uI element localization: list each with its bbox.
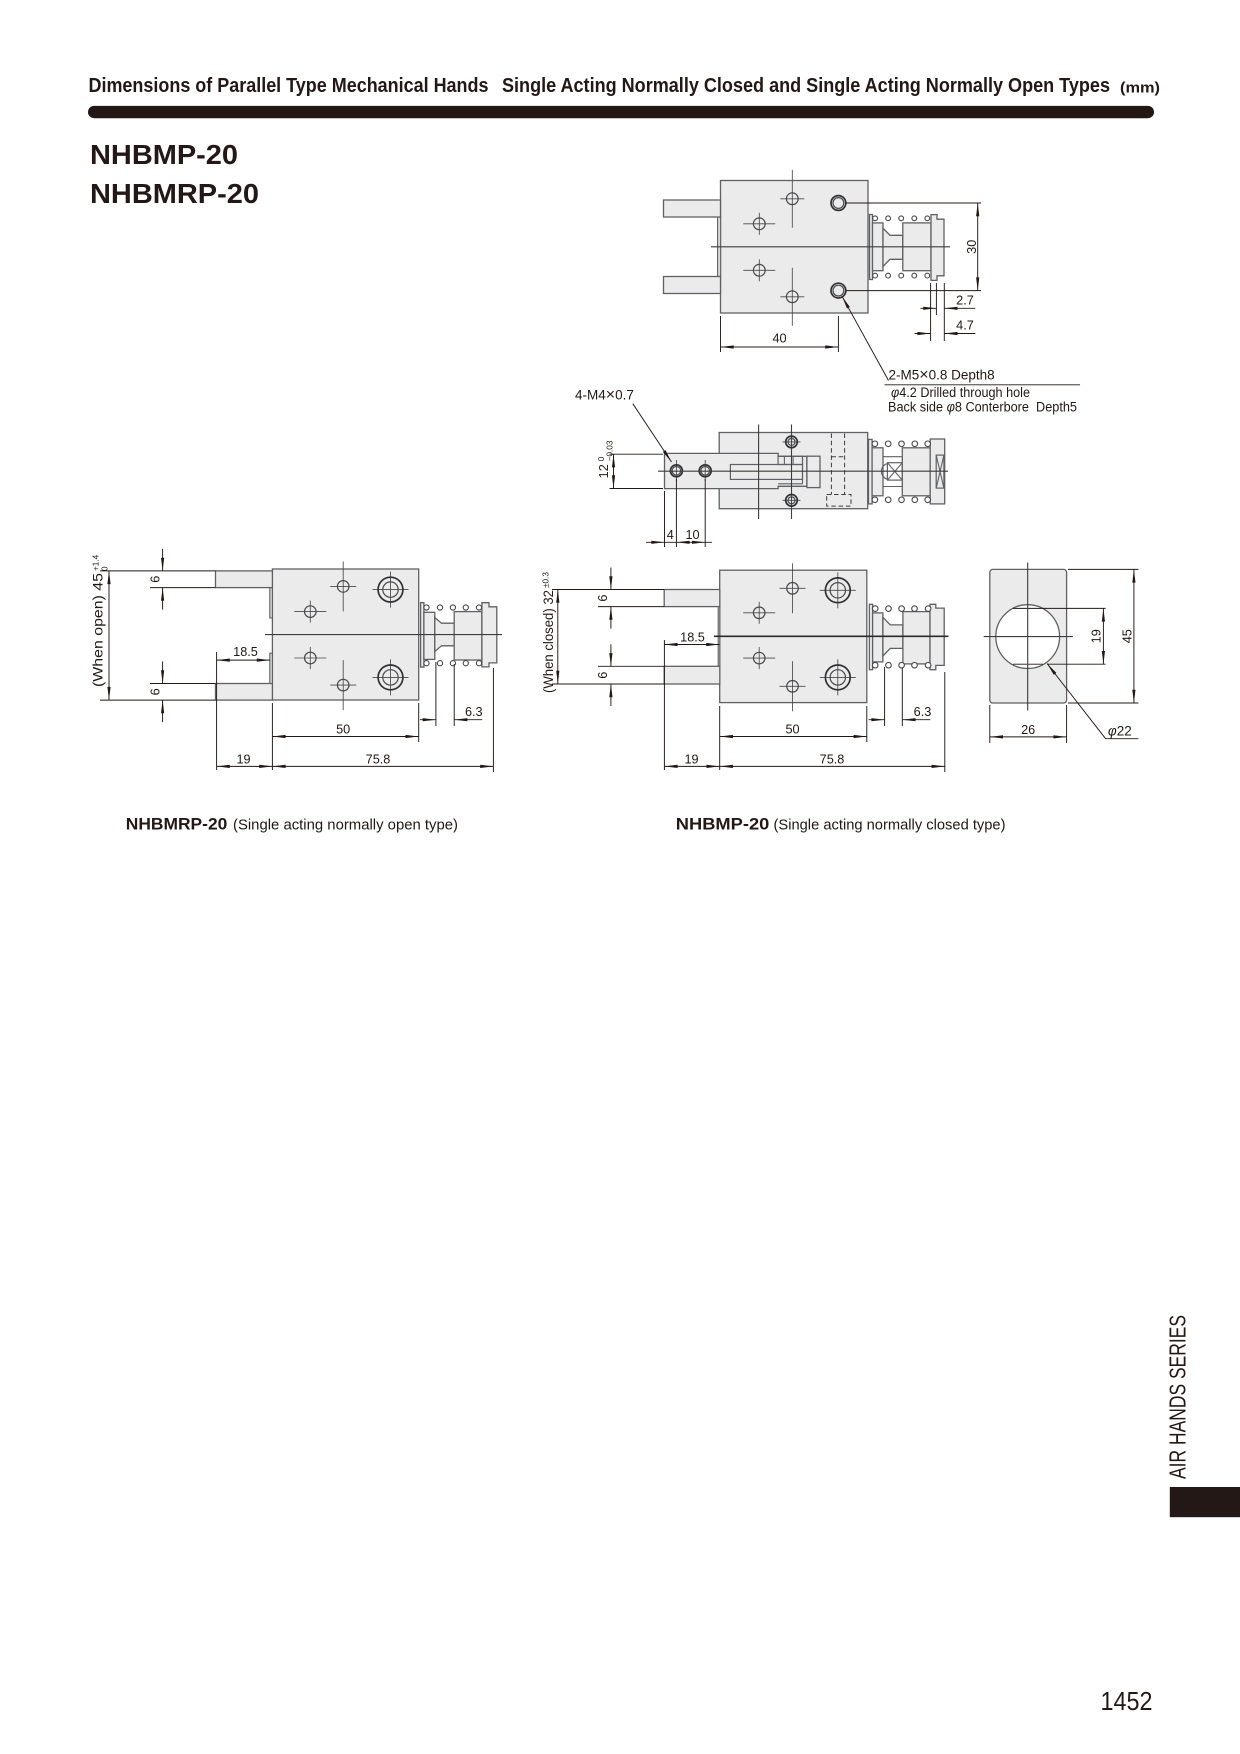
svg-text:6: 6 xyxy=(149,576,163,583)
svg-text:NHBMRP-20: NHBMRP-20 xyxy=(126,816,228,834)
svg-text:12: 12 xyxy=(597,464,611,478)
svg-text:6.3: 6.3 xyxy=(914,705,932,719)
svg-text:−0.03: −0.03 xyxy=(606,440,615,461)
svg-text:NHBMP-20: NHBMP-20 xyxy=(676,816,770,834)
svg-text:50: 50 xyxy=(785,723,799,737)
svg-text:4: 4 xyxy=(667,528,674,542)
svg-text:10: 10 xyxy=(685,528,699,542)
svg-text:26: 26 xyxy=(1021,723,1035,737)
svg-text:Single Acting Normally Closed: Single Acting Normally Closed and Single… xyxy=(502,74,1110,97)
svg-text:±0.3: ±0.3 xyxy=(542,572,551,588)
svg-text:φ4.2 Drilled through hole: φ4.2 Drilled through hole xyxy=(891,385,1030,400)
svg-text:6: 6 xyxy=(149,688,163,695)
svg-text:NHBMRP-20: NHBMRP-20 xyxy=(90,178,259,209)
svg-text:2.7: 2.7 xyxy=(956,294,974,308)
svg-text:18.5: 18.5 xyxy=(680,631,705,645)
svg-text:NHBMP-20: NHBMP-20 xyxy=(90,139,238,170)
svg-text:18.5: 18.5 xyxy=(233,645,258,659)
svg-text:(mm): (mm) xyxy=(1120,81,1160,97)
svg-text:40: 40 xyxy=(772,332,786,346)
svg-text:0: 0 xyxy=(100,566,109,571)
svg-text:Dimensions of Parallel Type Me: Dimensions of Parallel Type Mechanical H… xyxy=(89,74,489,97)
svg-text:1452: 1452 xyxy=(1101,1686,1153,1716)
svg-text:φ22: φ22 xyxy=(1108,724,1132,739)
svg-text:2-M5×0.8 Depth8: 2-M5×0.8 Depth8 xyxy=(889,366,995,383)
svg-text:4-M4×0.7: 4-M4×0.7 xyxy=(575,387,634,404)
svg-text:(When open) 45: (When open) 45 xyxy=(91,573,106,687)
svg-text:19: 19 xyxy=(1089,629,1103,643)
svg-text:75.8: 75.8 xyxy=(366,753,391,767)
svg-text:50: 50 xyxy=(336,723,350,737)
svg-text:+1.4: +1.4 xyxy=(92,554,101,571)
svg-text:AIR HANDS SERIES: AIR HANDS SERIES xyxy=(1165,1315,1191,1479)
svg-text:6: 6 xyxy=(596,672,610,679)
svg-text:6.3: 6.3 xyxy=(465,705,483,719)
svg-text:Back side φ8 Conterbore Depth: Back side φ8 Conterbore Depth5 xyxy=(888,400,1077,415)
svg-text:19: 19 xyxy=(236,753,250,767)
svg-text:(Single acting normally open t: (Single acting normally open type) xyxy=(233,817,458,834)
svg-text:75.8: 75.8 xyxy=(820,753,845,767)
svg-text:(When closed) 32: (When closed) 32 xyxy=(541,590,556,693)
svg-text:30: 30 xyxy=(965,240,979,254)
svg-text:(Single acting normally closed: (Single acting normally closed type) xyxy=(774,817,1006,834)
svg-text:0: 0 xyxy=(597,456,606,461)
svg-text:45: 45 xyxy=(1121,629,1135,643)
svg-text:6: 6 xyxy=(596,595,610,602)
svg-text:19: 19 xyxy=(684,753,698,767)
svg-text:4.7: 4.7 xyxy=(956,319,974,333)
